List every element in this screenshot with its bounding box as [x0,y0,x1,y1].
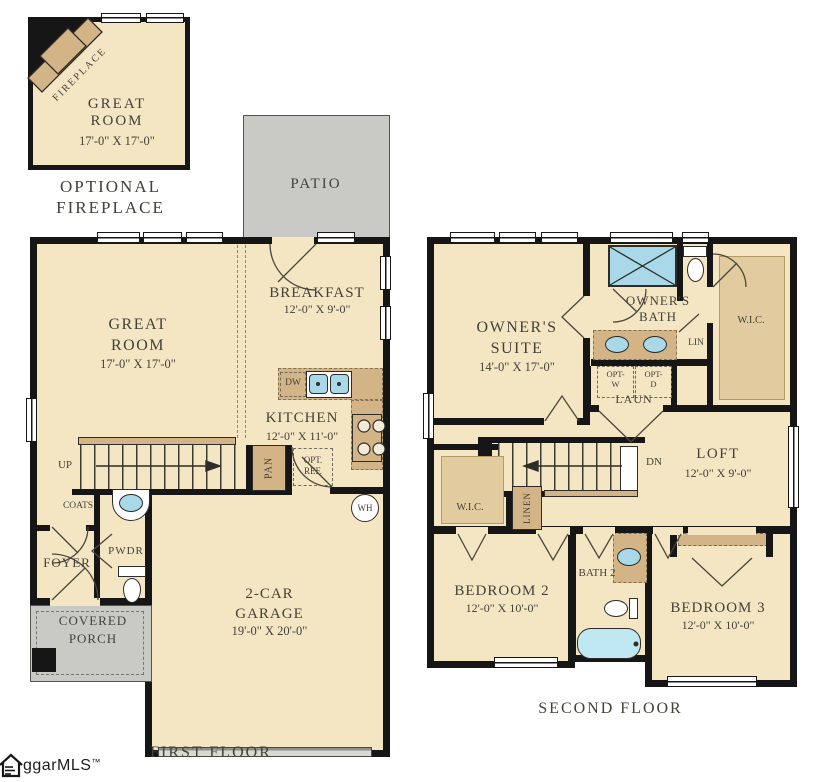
closet-opening [688,527,756,535]
wall-segment [583,244,590,296]
owners-suite-label: OWNER'S SUITE [452,318,582,360]
kitchen-dims: 12'-0" X 11'-0" [248,430,356,444]
dashed-opening [245,245,247,438]
first-floor-caption: FIRST FLOOR [140,744,282,762]
stair-rail [544,490,638,497]
great-room-label: GREAT ROOM [82,315,194,357]
front-door-opening [50,598,100,606]
vanity-sink [643,336,667,353]
shower [608,245,677,287]
window [423,393,434,439]
foyer-label: FOYER [38,556,96,571]
wall-segment [663,405,677,412]
window [380,306,391,340]
wall-segment [577,418,590,425]
stairs-down [498,443,620,491]
logo-trademark: ™ [91,757,100,767]
dashed-opening [237,245,239,438]
garage-label: 2-CAR GARAGE [222,585,317,624]
powder-sink [119,494,143,512]
window [494,657,558,668]
bedroom3-dims: 12'-0" X 10'-0" [658,619,778,633]
window [317,232,355,243]
opt-washer-label: OPT-W [598,370,633,390]
door-opening [456,527,488,535]
powder-label: PWDR [100,545,152,558]
wall-segment [766,527,773,557]
opt-w-line1: OPT- [606,369,624,379]
wall-segment [286,445,292,491]
up-label: UP [52,459,78,472]
stair-rail [78,437,236,445]
sink-basin [330,374,349,394]
window [682,232,709,243]
bedroom2-label: BEDROOM 2 [438,583,566,600]
wall-segment [707,323,713,411]
toilet-tank [683,246,707,257]
great-room-dims: 17'-0" X 17'-0" [72,357,204,371]
bath2-sink [617,548,641,566]
bedroom2-dims: 12'-0" X 10'-0" [442,602,562,616]
window [186,232,223,243]
toilet-tank [118,566,146,577]
toilet-bowl [687,258,704,282]
porch-label: COVERED PORCH [48,612,138,647]
porch-post [32,648,56,672]
wall-segment [36,525,50,531]
wic2-label: W.I.C. [440,502,500,514]
door-opening [653,527,683,535]
wic-label: W.I.C. [722,315,780,327]
window [499,232,536,243]
second-floor-caption: SECOND FLOOR [528,700,693,718]
window [667,676,757,687]
breakfast-dims: 12'-0" X 9'-0" [262,303,372,317]
owners-bath-label: OWNER'S BATH [612,293,704,326]
linen-closet: LINEN [512,486,542,530]
inset-room-label: GREAT ROOM [62,96,172,131]
opt-ref-label: OPT. REF. [295,455,331,477]
window [610,232,673,243]
door-opening [583,527,615,535]
loft-dims: 12'-0" X 9'-0" [664,467,772,481]
toilet-bowl [604,600,628,617]
water-heater-label: WH [358,503,373,513]
opt-d-line1: OPT- [644,369,662,379]
breakfast-label: BREAKFAST [258,285,376,302]
wall-segment [427,444,506,450]
window [380,256,391,290]
window [146,13,184,23]
opt-w-line2: W [611,379,619,389]
bedroom3-label: BEDROOM 3 [652,600,784,617]
toilet-tank [629,598,638,619]
window [788,426,799,508]
loft-label: LOFT [688,446,748,463]
bathtub [577,628,641,659]
owners-suite-dims: 14'-0" X 17'-0" [452,360,582,374]
window [143,232,182,243]
laundry-label: LAUN [606,393,662,407]
opt-dryer-label: OPT-D [636,370,671,390]
window [450,232,495,243]
coats-label: COATS [54,501,102,512]
inset-caption: OPTIONAL FIREPLACE [28,176,193,219]
opt-d-line2: D [650,379,656,389]
vanity-sink [605,336,629,353]
patio-door-opening [272,237,314,245]
sink-basin [309,374,328,394]
wall-segment [583,405,599,412]
stairs-up [80,445,246,489]
linen-label: LIN [681,338,711,349]
kitchen-label: KITCHEN [252,410,352,427]
water-heater: WH [351,494,379,522]
window [97,232,140,243]
wall-segment [677,405,797,412]
floor-plan-canvas: GREAT ROOM 17'-0" X 17'-0" FIREPLACE OPT… [0,0,821,782]
window [101,13,141,23]
wall-segment [434,418,544,425]
window [541,232,578,243]
window [26,398,37,442]
pantry: PAN [252,445,286,491]
wic-carpet [719,256,785,400]
garage-dims: 19'-0" X 20'-0" [212,624,327,638]
wall-segment [707,244,713,287]
garage-door-opening [292,487,330,495]
stair-landing-rail [620,446,638,491]
mls-logo: ggarMLS ™ [0,752,100,779]
dishwasher-label: DW [280,378,306,389]
patio-label: PATIO [280,176,352,193]
wall-segment [591,359,713,366]
inset-room-dims: 17'-0" X 17'-0" [52,134,182,148]
bath2-label: BATH 2 [577,567,617,581]
range [352,414,382,462]
logo-text: ggarMLS [23,757,91,775]
